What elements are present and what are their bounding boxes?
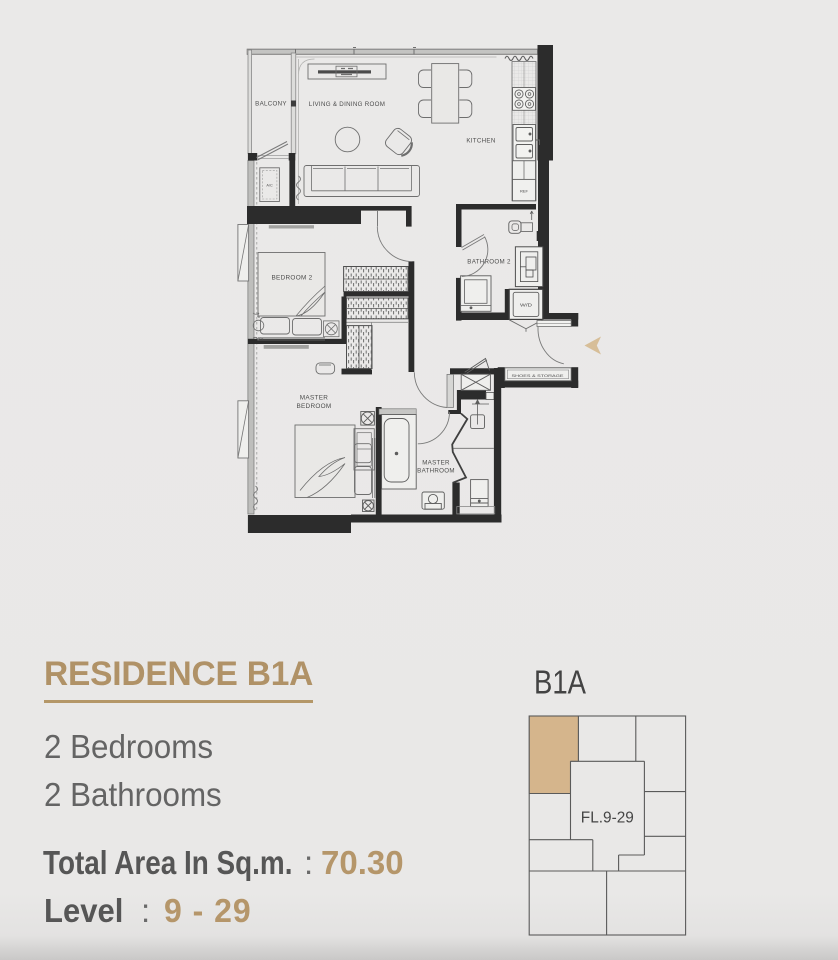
svg-text:FL.9-29: FL.9-29 bbox=[581, 810, 634, 827]
svg-text:BEDROOM 2: BEDROOM 2 bbox=[271, 275, 312, 282]
svg-text:SHOES & STORAGE: SHOES & STORAGE bbox=[512, 373, 564, 378]
svg-text:KITCHEN: KITCHEN bbox=[466, 138, 495, 145]
svg-text:BATHROOM: BATHROOM bbox=[417, 468, 455, 475]
svg-text:B1A: B1A bbox=[534, 665, 587, 702]
svg-text:BATHROOM 2: BATHROOM 2 bbox=[467, 259, 511, 266]
svg-text:W/D: W/D bbox=[520, 303, 533, 308]
svg-text:BALCONY: BALCONY bbox=[255, 101, 287, 108]
svg-text:MASTER: MASTER bbox=[300, 395, 329, 402]
svg-text:A/C: A/C bbox=[266, 184, 273, 188]
svg-text:REF: REF bbox=[520, 189, 529, 194]
svg-text:LIVING & DINING ROOM: LIVING & DINING ROOM bbox=[309, 101, 385, 108]
svg-text:BEDROOM: BEDROOM bbox=[296, 403, 331, 410]
svg-text:MASTER: MASTER bbox=[422, 460, 450, 467]
